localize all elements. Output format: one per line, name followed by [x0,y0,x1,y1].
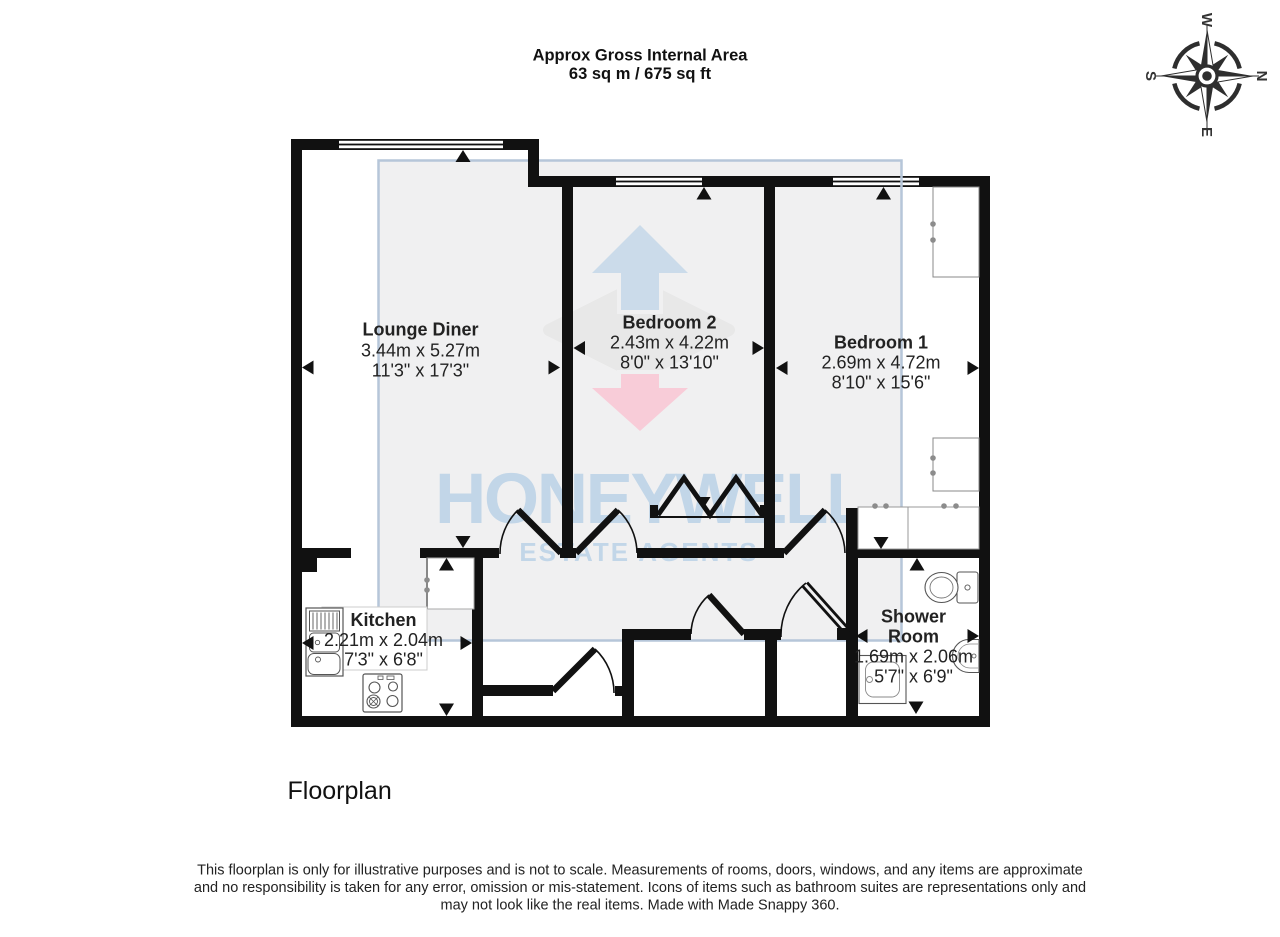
svg-text:Bedroom 1: Bedroom 1 [834,333,928,353]
svg-text:8'0" x 13'10": 8'0" x 13'10" [620,353,719,373]
svg-text:7'3" x 6'8": 7'3" x 6'8" [344,650,423,670]
svg-text:2.21m x 2.04m: 2.21m x 2.04m [324,630,443,650]
svg-text:Lounge Diner: Lounge Diner [363,320,479,340]
svg-text:Shower: Shower [881,607,946,627]
svg-text:Kitchen: Kitchen [350,610,416,630]
svg-text:E: E [1198,127,1215,137]
svg-text:and no responsibility is taken: and no responsibility is taken for any e… [194,880,1086,896]
svg-text:Bedroom 2: Bedroom 2 [622,313,716,333]
svg-text:Room: Room [888,627,939,647]
svg-text:S: S [1142,71,1159,81]
svg-text:Approx Gross Internal Area: Approx Gross Internal Area [533,47,749,65]
svg-text:may not look like the real ite: may not look like the real items. Made w… [441,898,840,914]
svg-text:N: N [1253,71,1270,82]
svg-text:2.69m x 4.72m: 2.69m x 4.72m [821,353,940,373]
svg-text:This floorplan is only for ill: This floorplan is only for illustrative … [197,863,1083,879]
svg-text:W: W [1198,13,1215,28]
svg-text:Floorplan: Floorplan [288,777,392,805]
svg-text:2.43m x 4.22m: 2.43m x 4.22m [610,333,729,353]
svg-text:HONEYWELL: HONEYWELL [435,460,868,539]
svg-text:1.69m x 2.06m: 1.69m x 2.06m [854,647,973,667]
svg-text:5'7" x 6'9": 5'7" x 6'9" [874,667,953,687]
svg-text:8'10" x 15'6": 8'10" x 15'6" [832,373,931,393]
svg-text:3.44m x 5.27m: 3.44m x 5.27m [361,341,480,361]
svg-text:63 sq m / 675 sq ft: 63 sq m / 675 sq ft [569,65,712,83]
svg-text:11'3" x 17'3": 11'3" x 17'3" [372,361,469,381]
